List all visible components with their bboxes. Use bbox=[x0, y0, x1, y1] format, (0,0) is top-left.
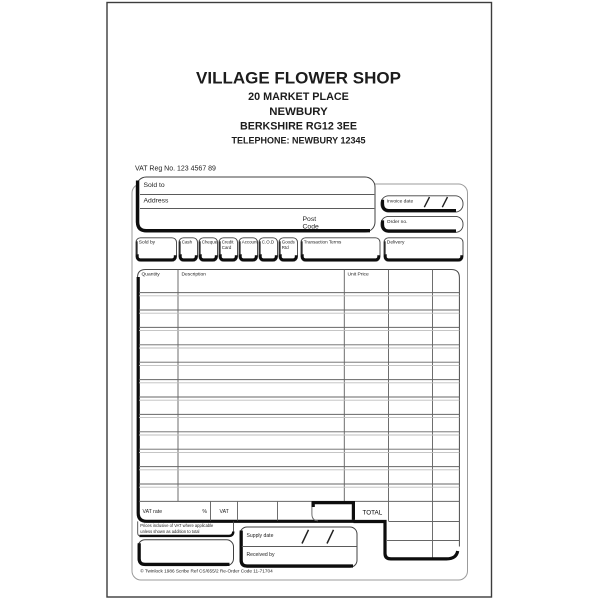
svg-text:Card: Card bbox=[222, 245, 232, 250]
svg-text:NEWBURY: NEWBURY bbox=[269, 106, 328, 118]
svg-text:Supply date: Supply date bbox=[247, 533, 274, 539]
svg-text:Order no.: Order no. bbox=[387, 219, 408, 225]
svg-text:Rtd: Rtd bbox=[282, 245, 289, 250]
svg-text:Prices inclusive of VAT where: Prices inclusive of VAT where applicable bbox=[140, 523, 214, 528]
svg-text:Unit Price: Unit Price bbox=[348, 271, 369, 277]
svg-text:VILLAGE FLOWER SHOP: VILLAGE FLOWER SHOP bbox=[196, 69, 401, 88]
svg-text:TOTAL: TOTAL bbox=[363, 510, 383, 517]
svg-text:unless shown as addition to to: unless shown as addition to total bbox=[140, 529, 199, 534]
svg-text:VAT Reg No. 123 4567 89: VAT Reg No. 123 4567 89 bbox=[135, 166, 216, 173]
svg-text:Account: Account bbox=[242, 240, 259, 245]
svg-text:Delivery: Delivery bbox=[387, 240, 405, 246]
svg-text:20 MARKET PLACE: 20 MARKET PLACE bbox=[248, 91, 349, 103]
svg-text:Post: Post bbox=[303, 216, 317, 223]
svg-text:Cheque: Cheque bbox=[202, 240, 218, 245]
svg-text:C.O.D: C.O.D bbox=[262, 240, 274, 245]
svg-text:Transaction Terms: Transaction Terms bbox=[304, 240, 342, 245]
svg-text:Sold to: Sold to bbox=[144, 182, 165, 189]
svg-text:Sold by: Sold by bbox=[139, 240, 156, 246]
svg-text:Description: Description bbox=[182, 271, 207, 277]
svg-text:%: % bbox=[202, 509, 207, 515]
svg-text:TELEPHONE: NEWBURY 12345: TELEPHONE: NEWBURY 12345 bbox=[231, 136, 365, 146]
svg-text:Cash: Cash bbox=[182, 240, 193, 245]
svg-text:Code: Code bbox=[303, 224, 319, 231]
svg-text:© Twinlock 1986 Scribe Ref CS/: © Twinlock 1986 Scribe Ref CS/655/2 Re-O… bbox=[140, 568, 273, 574]
svg-text:Invoice date: Invoice date bbox=[387, 198, 414, 204]
svg-text:BERKSHIRE RG12 3EE: BERKSHIRE RG12 3EE bbox=[240, 121, 357, 133]
svg-text:Quantity: Quantity bbox=[142, 271, 161, 277]
svg-text:Address: Address bbox=[144, 197, 170, 204]
svg-text:VAT: VAT bbox=[220, 509, 230, 515]
svg-text:VAT rate: VAT rate bbox=[143, 509, 163, 515]
svg-text:Received by: Received by bbox=[247, 552, 275, 558]
